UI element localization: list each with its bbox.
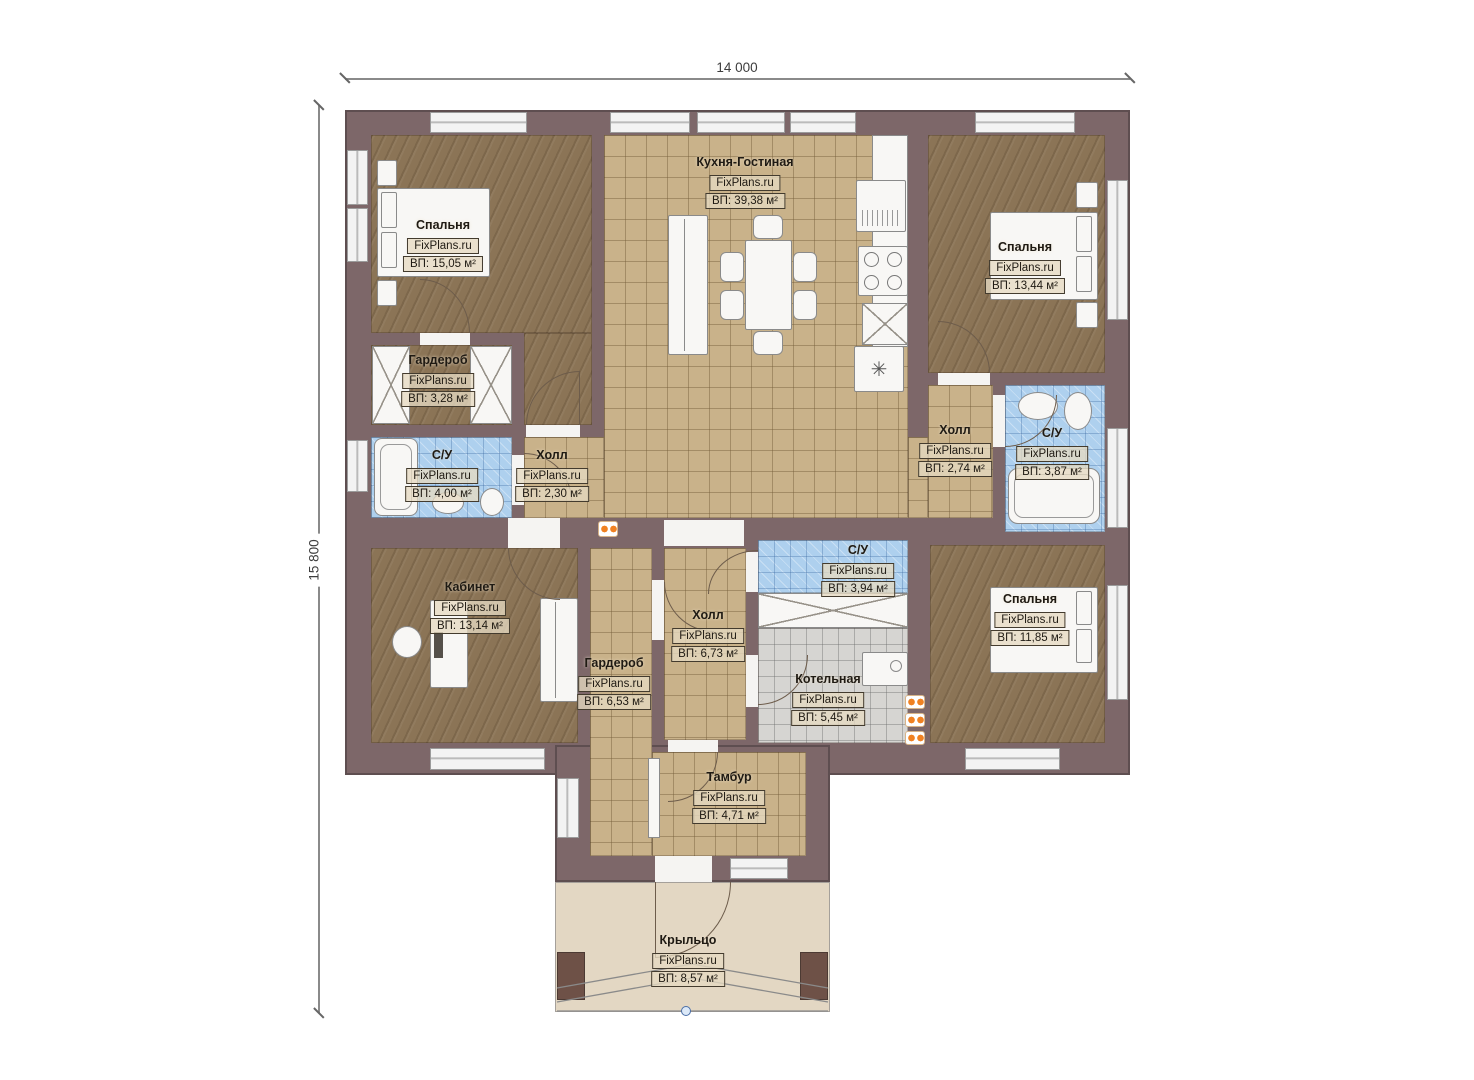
room-brand: FixPlans.ru [652, 953, 724, 969]
room-brand: FixPlans.ru [994, 612, 1066, 628]
room-label-bedroom-top-left: Спальня FixPlans.ru ВП: 15,05 м² [403, 218, 483, 272]
room-brand: FixPlans.ru [919, 443, 991, 459]
room-area: ВП: 2,74 м² [918, 461, 992, 477]
door-gap-bedroom-suite [526, 425, 580, 437]
room-name: Холл [536, 448, 567, 462]
room-name: Гардероб [584, 656, 643, 670]
room-name: Спальня [416, 218, 470, 232]
room-brand: FixPlans.ru [578, 676, 650, 692]
room-name: Спальня [998, 240, 1052, 254]
room-name: Кухня-Гостиная [696, 155, 793, 169]
office-sofa [540, 598, 578, 702]
window-left-1 [347, 150, 368, 205]
toilet-left [480, 488, 504, 516]
dimension-height-label: 15 800 [307, 533, 322, 586]
window-top-4 [790, 112, 856, 133]
stove-burner [887, 275, 902, 290]
room-brand: FixPlans.ru [434, 600, 506, 616]
nightstand [1076, 182, 1098, 208]
room-name: С/У [1042, 426, 1062, 440]
room-brand: FixPlans.ru [672, 628, 744, 644]
room-label-wardrobe-center: Гардероб FixPlans.ru ВП: 6,53 м² [577, 656, 651, 710]
room-area: ВП: 3,94 м² [821, 581, 895, 597]
room-area: ВП: 5,45 м² [791, 710, 865, 726]
room-label-bedroom-bottom-right: Спальня FixPlans.ru ВП: 11,85 м² [990, 592, 1069, 646]
pillow [1076, 216, 1092, 252]
dining-chair [753, 215, 783, 239]
radiator [905, 695, 925, 709]
window-right-2 [1107, 428, 1128, 528]
door-gap-boiler [746, 655, 758, 707]
radiator [905, 731, 925, 745]
room-name: Тамбур [706, 770, 751, 784]
boiler-dial [890, 660, 902, 672]
dimension-line-top [345, 78, 1130, 80]
stove-burner [887, 252, 902, 267]
room-label-hall-left: Холл FixPlans.ru ВП: 2,30 м² [515, 448, 589, 502]
door-gap-office [508, 518, 560, 548]
room-area: ВП: 3,28 м² [401, 391, 475, 407]
room-label-bath-right: С/У FixPlans.ru ВП: 3,87 м² [1015, 426, 1089, 480]
closet-center [758, 593, 908, 628]
room-brand: FixPlans.ru [1016, 446, 1088, 462]
nightstand [1076, 302, 1098, 328]
toilet-right [1064, 392, 1092, 430]
window-left-3 [347, 440, 368, 492]
window-right-1 [1107, 180, 1128, 320]
room-label-vestibule: Тамбур FixPlans.ru ВП: 4,71 м² [692, 770, 766, 824]
room-area: ВП: 6,73 м² [671, 646, 745, 662]
room-brand: FixPlans.ru [516, 468, 588, 484]
kitchen-sink: ✳ [854, 346, 904, 392]
room-label-wardrobe-top-left: Гардероб FixPlans.ru ВП: 3,28 м² [401, 353, 475, 407]
window-vestibule-left [557, 778, 579, 838]
pillow [1076, 629, 1092, 663]
office-chair [392, 626, 422, 658]
office-sofa-line [555, 602, 556, 698]
sofa-seat-line [684, 219, 685, 351]
window-bottom-left [430, 748, 545, 770]
window-bottom-right [965, 748, 1060, 770]
door-gap-bedroom-tr [938, 373, 990, 385]
room-area: ВП: 3,87 м² [1015, 464, 1089, 480]
room-label-kitchen-living: Кухня-Гостиная FixPlans.ru ВП: 39,38 м² [696, 155, 793, 209]
room-area: ВП: 11,85 м² [990, 630, 1069, 646]
room-brand: FixPlans.ru [402, 373, 474, 389]
pillow [1076, 591, 1092, 625]
room-area: ВП: 8,57 м² [651, 971, 725, 987]
room-brand: FixPlans.ru [407, 238, 479, 254]
room-label-bath-center: С/У FixPlans.ru ВП: 3,94 м² [821, 543, 895, 597]
dining-chair [793, 290, 817, 320]
room-brand: FixPlans.ru [822, 563, 894, 579]
window-top-3 [697, 112, 785, 133]
room-label-bedroom-top-right: Спальня FixPlans.ru ВП: 13,44 м² [985, 240, 1065, 294]
kitchen-cabinet [862, 303, 908, 345]
room-label-bath-left: С/У FixPlans.ru ВП: 4,00 м² [405, 448, 479, 502]
room-brand: FixPlans.ru [709, 175, 781, 191]
pillow [381, 192, 397, 228]
pillow [381, 232, 397, 268]
stove-burner [864, 252, 879, 267]
door-gap-hall-center-top [664, 520, 744, 546]
room-area: ВП: 2,30 м² [515, 486, 589, 502]
nightstand [377, 160, 397, 186]
room-area: ВП: 6,53 м² [577, 694, 651, 710]
room-name: С/У [432, 448, 452, 462]
room-label-porch: Крыльцо FixPlans.ru ВП: 8,57 м² [651, 933, 725, 987]
room-area: ВП: 13,14 м² [430, 618, 510, 634]
dining-chair [720, 252, 744, 282]
room-area: ВП: 39,38 м² [705, 193, 785, 209]
room-area: ВП: 4,00 м² [405, 486, 479, 502]
room-brand: FixPlans.ru [989, 260, 1061, 276]
room-name: Спальня [1003, 592, 1057, 606]
door-gap-wardrobe-tl [420, 333, 470, 345]
bathtub-inner [1014, 474, 1094, 518]
room-label-office: Кабинет FixPlans.ru ВП: 13,14 м² [430, 580, 510, 634]
sofa-living [668, 215, 708, 355]
room-name: Кабинет [445, 580, 496, 594]
porch-center-marker [681, 1006, 691, 1016]
dining-table [745, 240, 792, 330]
room-area: ВП: 15,05 м² [403, 256, 483, 272]
room-label-hall-center: Холл FixPlans.ru ВП: 6,73 м² [671, 608, 745, 662]
door-gap-bath-right [993, 395, 1005, 447]
room-name: Котельная [795, 672, 860, 686]
stove-burner [864, 275, 879, 290]
room-area: ВП: 13,44 м² [985, 278, 1065, 294]
room-area: ВП: 4,71 м² [692, 808, 766, 824]
nightstand [377, 280, 397, 306]
floor-plan: ✳ 14 000 15 800 Спальня FixPlans.ru ВП: [0, 0, 1474, 1080]
open-door-leaf [648, 758, 660, 838]
dining-chair [793, 252, 817, 282]
room-label-boiler: Котельная FixPlans.ru ВП: 5,45 м² [791, 672, 865, 726]
pillow [1076, 256, 1092, 292]
room-brand: FixPlans.ru [406, 468, 478, 484]
stove [858, 246, 908, 296]
window-top-2 [610, 112, 690, 133]
window-vestibule-bottom [730, 858, 788, 879]
window-top-5 [975, 112, 1075, 133]
dining-chair [720, 290, 744, 320]
window-left-2 [347, 208, 368, 262]
room-name: С/У [848, 543, 868, 557]
dining-chair [753, 331, 783, 355]
room-brand: FixPlans.ru [693, 790, 765, 806]
room-brand: FixPlans.ru [792, 692, 864, 708]
radiator [598, 521, 618, 537]
entry-door-opening [655, 856, 712, 882]
door-gap-corridor-hall [652, 580, 664, 640]
room-name: Холл [692, 608, 723, 622]
office-monitor [434, 632, 443, 658]
room-name: Крыльцо [660, 933, 717, 947]
window-top-1 [430, 112, 527, 133]
wardrobe-shelf [470, 346, 512, 424]
room-label-hall-right: Холл FixPlans.ru ВП: 2,74 м² [918, 423, 992, 477]
radiator [905, 713, 925, 727]
fridge-grill [862, 210, 900, 226]
dimension-width-label: 14 000 [710, 60, 763, 75]
room-name: Холл [939, 423, 970, 437]
room-name: Гардероб [408, 353, 467, 367]
door-gap-vestibule [668, 740, 718, 752]
window-right-3 [1107, 585, 1128, 700]
